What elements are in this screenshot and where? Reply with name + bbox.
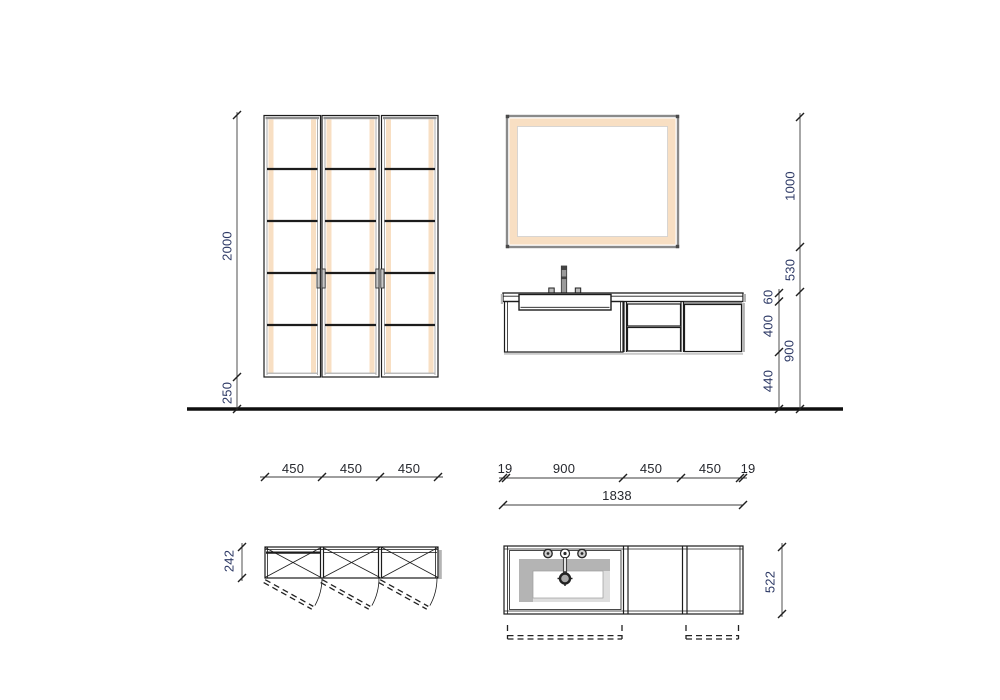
faucet-elevation <box>549 266 581 294</box>
dimension-plan-vanity-depth <box>778 543 786 618</box>
dim-label-countertop-thickness: 60 <box>762 290 775 305</box>
dimension-chain-elevation-left <box>233 111 241 413</box>
dim-label-cabinet-depth: 242 <box>223 550 236 572</box>
dim-label-vanity-clearance: 440 <box>762 370 775 392</box>
dim-label-unit-width-3: 450 <box>398 462 420 475</box>
mirror-elevation <box>506 115 679 248</box>
dim-label-right-section: 450 <box>699 462 721 475</box>
cabinet-door <box>264 116 321 378</box>
vanity-elevation <box>501 293 746 355</box>
hidden-lines <box>508 625 739 639</box>
tall-cabinets-plan <box>264 547 442 609</box>
vanity-plan <box>504 546 743 639</box>
drawing-linework <box>0 0 1000 700</box>
dim-label-vanity-edge-right: 19 <box>741 462 756 475</box>
cabinet-door <box>382 116 439 378</box>
door-handle <box>317 269 325 288</box>
cabinet-door <box>322 116 379 378</box>
dim-label-mirror-height: 1000 <box>784 171 797 201</box>
door-swing <box>264 578 322 609</box>
dim-label-middle-section: 450 <box>640 462 662 475</box>
dim-label-vanity-unit-height: 400 <box>762 315 775 337</box>
sink-basin-front <box>519 295 611 311</box>
technical-drawing-canvas: 2000 250 1000 530 900 60 400 440 450 450… <box>0 0 1000 700</box>
dim-label-unit-width-2: 450 <box>340 462 362 475</box>
drawer-fronts <box>624 302 684 353</box>
dim-label-mirror-gap: 530 <box>784 259 797 281</box>
dim-label-counter-height: 900 <box>783 340 796 362</box>
dim-label-vanity-total-width: 1838 <box>602 489 632 502</box>
dim-label-cabinet-clearance: 250 <box>221 382 234 404</box>
dim-label-cabinet-height: 2000 <box>221 231 234 261</box>
dim-label-vanity-edge-left: 19 <box>498 462 513 475</box>
dim-label-vanity-depth: 522 <box>764 571 777 593</box>
dim-label-unit-width-1: 450 <box>282 462 304 475</box>
dim-label-sink-section: 900 <box>553 462 575 475</box>
vanity-right-door <box>684 302 742 352</box>
door-swing <box>321 578 379 609</box>
tall-cabinets-elevation <box>264 116 438 378</box>
door-swing <box>379 578 437 609</box>
door-handle <box>376 269 384 288</box>
dimension-plan-cabinets-depth <box>238 543 246 582</box>
